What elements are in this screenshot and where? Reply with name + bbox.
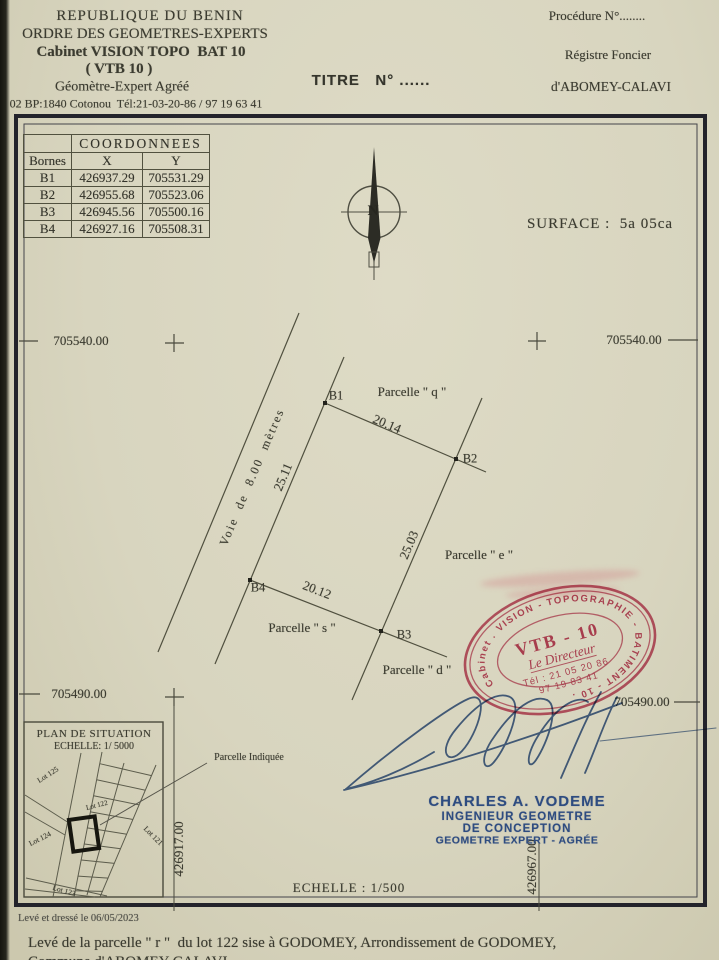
signature xyxy=(0,0,719,960)
scanned-survey-document: REPUBLIQUE DU BENIN ORDRE DES GEOMETRES-… xyxy=(0,0,719,960)
